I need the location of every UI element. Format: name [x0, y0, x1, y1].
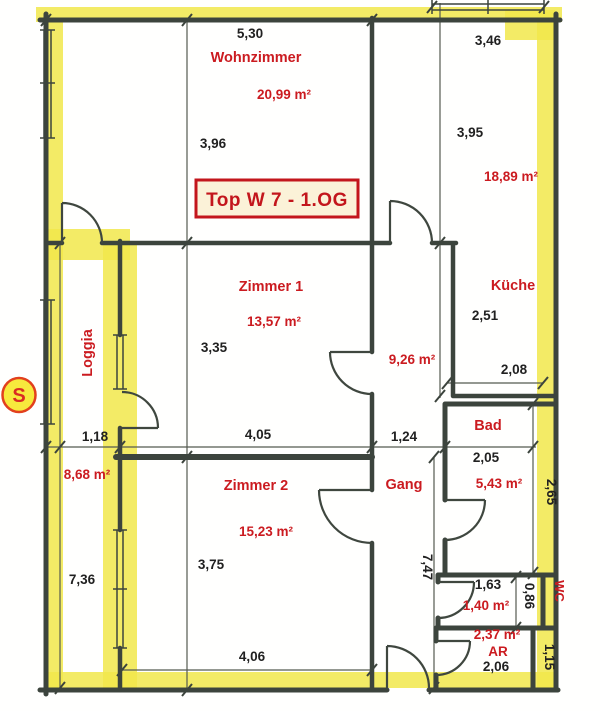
room-label-ar: AR [488, 644, 508, 659]
dim-wc-depth: 0,86 [522, 583, 537, 610]
dimension-labels: 5,30 3,46 3,96 3,95 3,35 2,51 2,08 1,18 … [69, 26, 559, 674]
dim-gang-length: 7,47 [420, 554, 435, 580]
compass-south-label: S [12, 385, 25, 407]
room-label-loggia: Loggia [80, 328, 96, 376]
room-label-zimmer1: Zimmer 1 [239, 279, 303, 295]
dim-kueche-lower-width: 2,08 [501, 362, 528, 377]
room-label-bad: Bad [474, 418, 501, 434]
dim-wohnzimmer-depth: 3,96 [200, 136, 227, 151]
door-bad [445, 500, 485, 540]
dim-loggia-width: 1,18 [82, 429, 109, 444]
room-area-wohnzimmer: 20,99 m² [257, 87, 312, 102]
room-area-wc: 1,40 m² [463, 598, 510, 613]
room-area-bad: 5,43 m² [476, 476, 523, 491]
door-zimmer1 [330, 352, 372, 394]
dim-ar-width: 2,06 [483, 659, 510, 674]
dim-wohnzimmer-width: 5,30 [237, 26, 263, 41]
room-label-kueche: Küche [491, 278, 535, 294]
compass-south-marker: S [3, 378, 36, 412]
dim-kueche-window: 3,46 [475, 33, 502, 48]
room-area-zimmer2: 15,23 m² [239, 524, 294, 539]
dim-zimmer2-depth: 3,75 [198, 557, 225, 572]
room-area-ar: 2,37 m² [474, 627, 521, 642]
dim-kueche-depth: 3,95 [457, 125, 484, 140]
room-area-gang: 9,26 m² [389, 352, 436, 367]
dim-gang-width: 1,24 [391, 429, 418, 444]
room-label-wohnzimmer: Wohnzimmer [211, 50, 302, 66]
room-area-kueche: 18,89 m² [484, 169, 539, 184]
room-label-zimmer2: Zimmer 2 [224, 478, 288, 494]
dim-loggia-length: 7,36 [69, 572, 96, 587]
dim-zimmer1-depth: 3,35 [201, 340, 228, 355]
room-labels: Wohnzimmer 20,99 m² 18,89 m² Küche Zimme… [64, 50, 567, 659]
dim-zimmer2-width: 4,06 [239, 649, 266, 664]
room-label-wc: WC [552, 580, 567, 602]
floor-plan-page: Top W 7 - 1.OG Wohnzimmer 20,99 m² 18,89… [0, 0, 600, 711]
dim-bad-width: 2,05 [473, 450, 500, 465]
dim-bad-depth: 2,65 [544, 479, 559, 506]
room-area-zimmer1: 13,57 m² [247, 314, 302, 329]
room-area-loggia: 8,68 m² [64, 467, 111, 482]
plan-title: Top W 7 - 1.OG [206, 190, 348, 211]
room-label-gang: Gang [385, 477, 422, 493]
door-gang-kueche [390, 201, 432, 243]
dim-wc-width: 1,63 [475, 577, 502, 592]
door-ar [436, 641, 470, 675]
dim-ar-depth: 1,15 [542, 644, 557, 671]
floor-plan-drawing: Top W 7 - 1.OG Wohnzimmer 20,99 m² 18,89… [0, 0, 600, 711]
dim-zimmer1-width: 4,05 [245, 427, 272, 442]
title-box: Top W 7 - 1.OG [196, 180, 358, 217]
door-zimmer2 [319, 490, 372, 543]
dim-kueche-lower-depth: 2,51 [472, 308, 499, 323]
